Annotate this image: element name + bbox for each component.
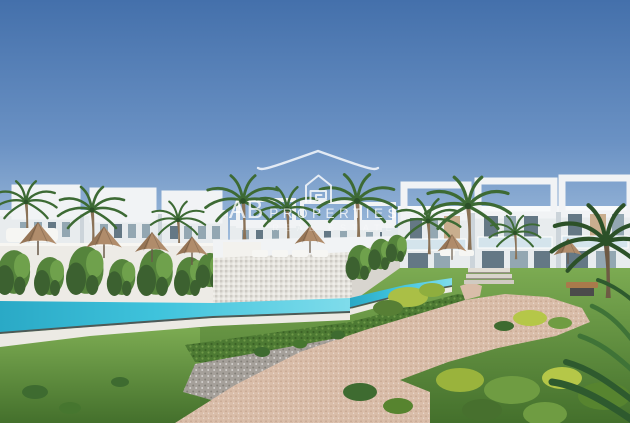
ivy-wall: [0, 243, 223, 306]
garden-steps: [464, 268, 514, 284]
garden-bench: [566, 282, 598, 296]
property-render-photo: ABPROPERTIES REAL ESTATE: [0, 0, 630, 423]
render-canvas: [0, 0, 630, 423]
pergola-frame: [164, 193, 220, 221]
